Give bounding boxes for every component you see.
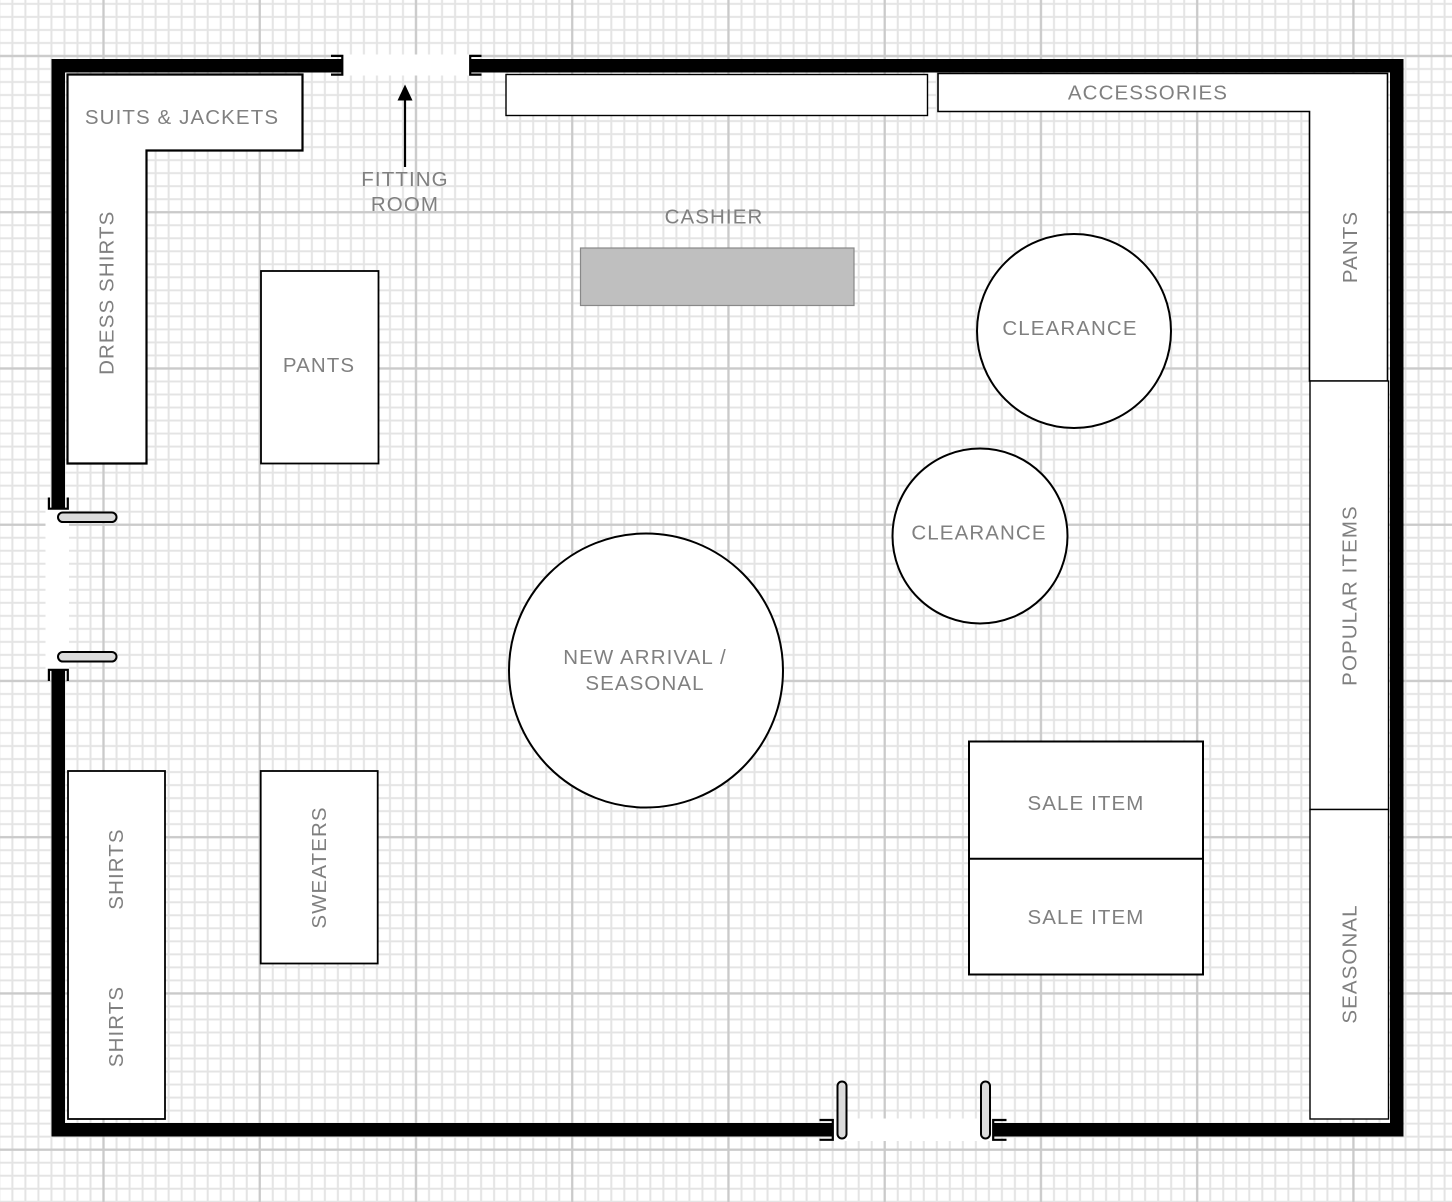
svg-text:SALE ITEM: SALE ITEM <box>1028 906 1145 929</box>
svg-text:CASHIER: CASHIER <box>665 206 764 229</box>
svg-text:SWEATERS: SWEATERS <box>308 806 331 928</box>
svg-text:SEASONAL: SEASONAL <box>1338 904 1361 1023</box>
svg-text:SUITS & JACKETS: SUITS & JACKETS <box>85 106 279 129</box>
svg-text:ROOM: ROOM <box>371 193 439 216</box>
svg-text:DRESS SHIRTS: DRESS SHIRTS <box>96 211 119 375</box>
svg-text:PANTS: PANTS <box>283 354 355 377</box>
svg-text:CLEARANCE: CLEARANCE <box>911 522 1046 545</box>
svg-text:SHIRTS: SHIRTS <box>105 828 128 909</box>
svg-text:NEW ARRIVAL /: NEW ARRIVAL / <box>563 646 727 669</box>
svg-text:SALE ITEM: SALE ITEM <box>1028 792 1145 815</box>
svg-text:PANTS: PANTS <box>1339 211 1362 283</box>
svg-text:SHIRTS: SHIRTS <box>105 986 128 1067</box>
svg-text:FITTING: FITTING <box>361 168 448 191</box>
svg-text:CLEARANCE: CLEARANCE <box>1002 317 1137 340</box>
svg-text:POPULAR ITEMS: POPULAR ITEMS <box>1338 505 1361 686</box>
svg-text:SEASONAL: SEASONAL <box>585 672 704 695</box>
svg-text:ACCESSORIES: ACCESSORIES <box>1068 82 1228 105</box>
